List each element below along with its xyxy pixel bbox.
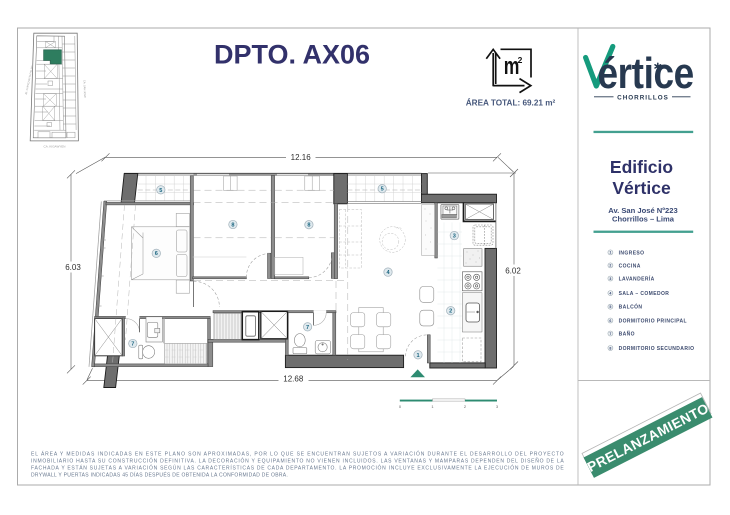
svg-text:12.68: 12.68 bbox=[283, 375, 304, 384]
svg-text:3: 3 bbox=[453, 233, 456, 239]
svg-text:értice: értice bbox=[598, 48, 694, 98]
svg-text:DRYWALL Y PUERTAS INDICADAS 45: DRYWALL Y PUERTAS INDICADAS 45 DÍAS DESP… bbox=[31, 472, 288, 479]
svg-text:COCINA: COCINA bbox=[619, 263, 641, 269]
svg-text:ÁREA TOTAL: 69.21 m²: ÁREA TOTAL: 69.21 m² bbox=[466, 98, 556, 108]
svg-text:6: 6 bbox=[155, 251, 158, 257]
svg-text:7: 7 bbox=[306, 325, 309, 331]
svg-text:INMOBILIARIO HASTA SU CONSTRUC: INMOBILIARIO HASTA SU CONSTRUCCIÓN DEFIN… bbox=[31, 458, 564, 465]
svg-text:12.16: 12.16 bbox=[291, 153, 312, 162]
svg-text:FACHADA Y ESTÁN SUJETAS A VARI: FACHADA Y ESTÁN SUJETAS A VARIACIÓN SEGÚ… bbox=[31, 465, 564, 472]
svg-text:5: 5 bbox=[609, 305, 611, 309]
svg-text:7: 7 bbox=[131, 342, 134, 348]
svg-text:EL ÁREA Y MEDIDAS INDICADAS EN: EL ÁREA Y MEDIDAS INDICADAS EN ESTE PLAN… bbox=[31, 451, 564, 458]
svg-text:DORMITORIO SECUNDARIO: DORMITORIO SECUNDARIO bbox=[619, 346, 695, 352]
svg-text:CHORRILLOS: CHORRILLOS bbox=[617, 94, 669, 101]
svg-text:CA. SAN JOSE: CA. SAN JOSE bbox=[83, 80, 88, 98]
svg-text:6: 6 bbox=[609, 319, 611, 323]
svg-text:4: 4 bbox=[609, 291, 611, 295]
svg-text:8: 8 bbox=[307, 222, 310, 228]
svg-text:6.03: 6.03 bbox=[65, 263, 81, 272]
svg-text:BALCÓN: BALCÓN bbox=[619, 303, 643, 311]
svg-text:2: 2 bbox=[609, 264, 611, 268]
svg-text:DPTO. AX06: DPTO. AX06 bbox=[214, 40, 370, 70]
svg-text:BAÑO: BAÑO bbox=[619, 330, 635, 337]
svg-text:5: 5 bbox=[381, 186, 384, 192]
svg-text:8: 8 bbox=[609, 346, 611, 350]
svg-text:2: 2 bbox=[449, 309, 452, 315]
svg-text:5: 5 bbox=[159, 188, 162, 194]
svg-text:LAVANDERÍA: LAVANDERÍA bbox=[619, 274, 655, 282]
svg-text:2: 2 bbox=[518, 55, 523, 65]
svg-text:Edificio: Edificio bbox=[610, 157, 673, 177]
svg-text:SALA – COMEDOR: SALA – COMEDOR bbox=[619, 291, 670, 297]
svg-text:1: 1 bbox=[416, 353, 419, 359]
svg-text:3: 3 bbox=[609, 277, 611, 281]
svg-text:8: 8 bbox=[231, 223, 234, 229]
svg-text:DORMITORIO PRINCIPAL: DORMITORIO PRINCIPAL bbox=[619, 318, 687, 324]
svg-text:7: 7 bbox=[609, 332, 611, 336]
svg-text:Vértice: Vértice bbox=[612, 178, 671, 198]
svg-text:Chorrillos – Lima: Chorrillos – Lima bbox=[612, 215, 675, 224]
svg-text:INGRESO: INGRESO bbox=[619, 250, 645, 256]
svg-text:1: 1 bbox=[609, 251, 611, 255]
svg-text:CA. KIGAWYEN: CA. KIGAWYEN bbox=[44, 145, 66, 149]
svg-text:6.02: 6.02 bbox=[505, 266, 521, 275]
